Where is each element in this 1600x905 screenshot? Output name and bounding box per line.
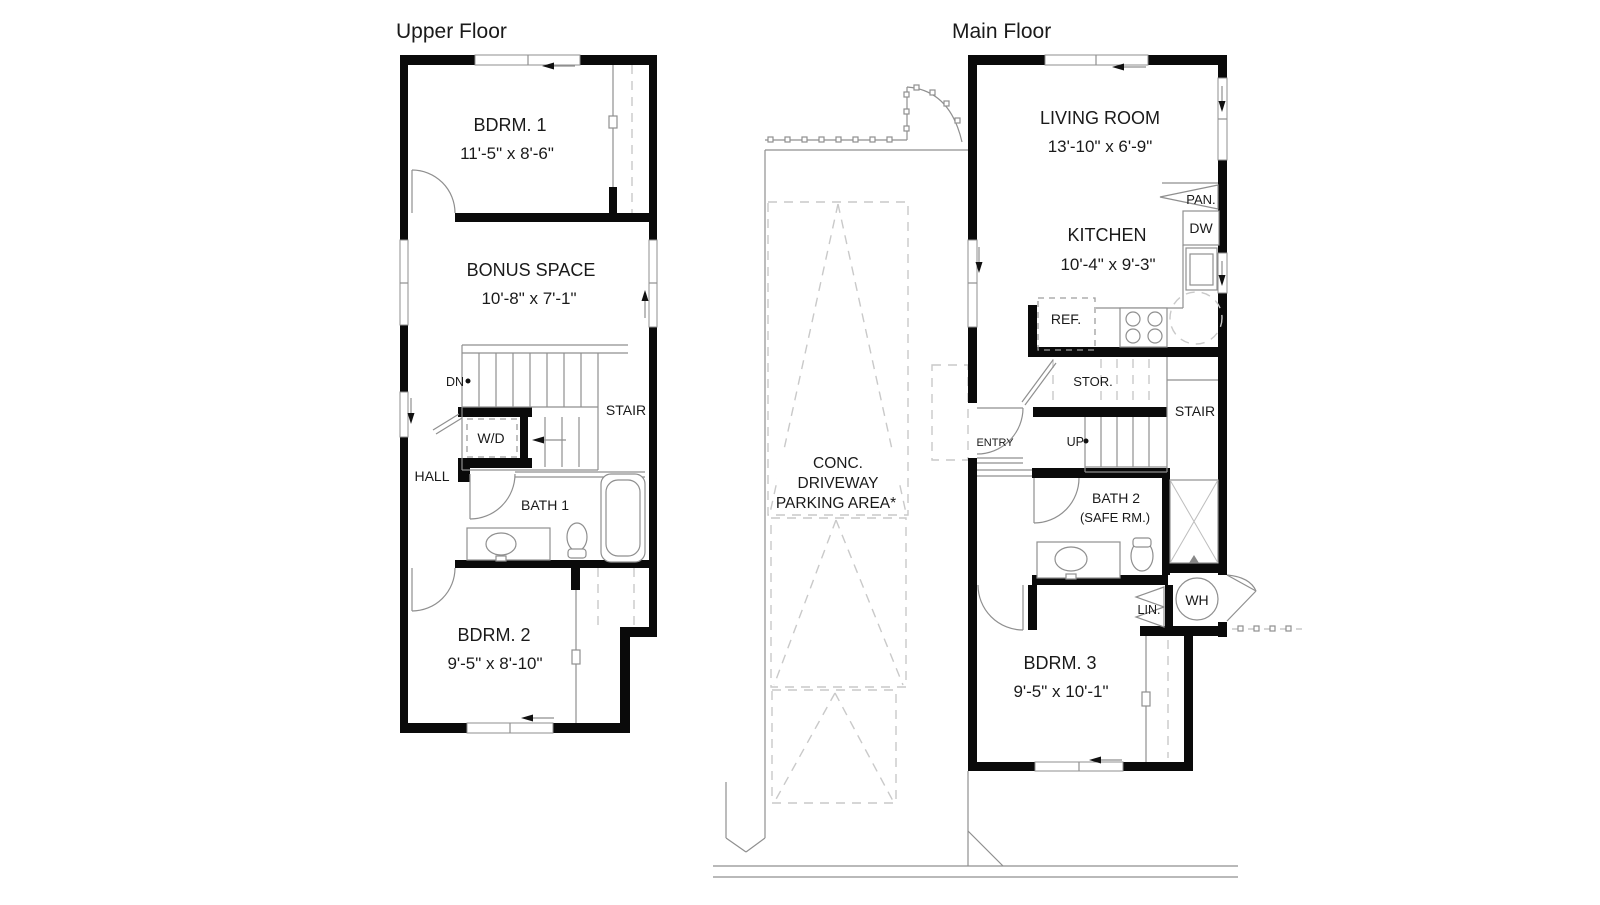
bathtub-inner bbox=[606, 480, 640, 556]
sink-symbol-bath1 bbox=[486, 533, 516, 555]
room-dims-bonus-space: 10'-8" x 7'-1" bbox=[481, 289, 576, 308]
closet-door-stub-bdrm1 bbox=[609, 116, 617, 128]
label-stair-main: STAIR bbox=[1175, 403, 1215, 419]
label-bath2: BATH 2 bbox=[1092, 490, 1140, 506]
label-water-heater: WH bbox=[1185, 592, 1208, 608]
room-dims-kitchen: 10'-4" x 9'-3" bbox=[1060, 255, 1155, 274]
room-label-bdrm3: BDRM. 3 bbox=[1023, 653, 1096, 673]
upper-floor-title: Upper Floor bbox=[396, 20, 507, 43]
label-refrigerator: REF. bbox=[1051, 311, 1081, 327]
room-label-bonus-space: BONUS SPACE bbox=[467, 260, 596, 280]
room-dims-bdrm1: 11'-5" x 8'-6" bbox=[460, 144, 554, 163]
closet-door-stub-bdrm3 bbox=[1142, 692, 1150, 706]
bdrm3-door bbox=[978, 585, 1023, 630]
room-dims-living-room: 13'-10" x 6'-9" bbox=[1048, 137, 1153, 156]
faucet-symbol-bath2 bbox=[1066, 574, 1076, 579]
burner-icon bbox=[1148, 312, 1162, 326]
toilet-base-bath1 bbox=[568, 549, 586, 558]
washer-dryer-door bbox=[433, 414, 462, 434]
label-washer-dryer: W/D bbox=[477, 430, 504, 446]
kitchen-corner-dashed-circle bbox=[1170, 292, 1222, 344]
label-entry: ENTRY bbox=[976, 437, 1014, 449]
label-linen: LIN. bbox=[1138, 603, 1161, 617]
storage-door bbox=[1022, 360, 1056, 405]
upper-floor-plan: Upper Floor bbox=[396, 20, 657, 733]
stairs-upper bbox=[462, 345, 628, 470]
bdrm2-door bbox=[412, 568, 455, 611]
room-label-bdrm1: BDRM. 1 bbox=[473, 115, 546, 135]
faucet-symbol-bath1 bbox=[496, 556, 506, 561]
bdrm3-interior-lines bbox=[1142, 636, 1168, 762]
room-label-bdrm2: BDRM. 2 bbox=[457, 625, 530, 645]
bdrm1-door bbox=[412, 170, 455, 213]
label-bath1: BATH 1 bbox=[521, 497, 569, 513]
label-dishwasher: DW bbox=[1189, 220, 1213, 236]
upper-interior-lines bbox=[515, 65, 645, 723]
bath1-fixtures bbox=[467, 474, 645, 562]
label-dn: DN bbox=[446, 375, 464, 389]
driveway-label-line2: DRIVEWAY bbox=[798, 475, 879, 492]
label-up: UP bbox=[1067, 435, 1084, 449]
label-safe-room: (SAFE RM.) bbox=[1080, 510, 1150, 525]
floorplan-svg: CONC. DRIVEWAY PARKING AREA* Upper Floor bbox=[0, 0, 1600, 905]
bath1-door bbox=[470, 474, 515, 519]
label-hall: HALL bbox=[414, 468, 449, 484]
burner-icon bbox=[1126, 312, 1140, 326]
driveway-label-line1: CONC. bbox=[813, 455, 863, 472]
sink-symbol-bath2 bbox=[1055, 547, 1087, 571]
entry-porch-outline bbox=[932, 365, 968, 460]
main-floor-plan: Main Floor bbox=[952, 20, 1302, 771]
kitchen-sink-inner bbox=[1190, 254, 1213, 285]
toilet-base-bath2 bbox=[1133, 538, 1151, 547]
entry-door bbox=[977, 408, 1023, 463]
room-label-kitchen: KITCHEN bbox=[1067, 225, 1146, 245]
room-label-living-room: LIVING ROOM bbox=[1040, 108, 1160, 128]
driveway-label-line3: PARKING AREA* bbox=[776, 495, 896, 512]
label-storage: STOR. bbox=[1073, 374, 1113, 389]
label-stair-upper: STAIR bbox=[606, 402, 646, 418]
toilet-symbol-bath1 bbox=[567, 523, 587, 551]
stair-direction-arrow-upper bbox=[532, 437, 566, 444]
stair-newel-dot-main bbox=[1084, 439, 1089, 444]
burner-icon bbox=[1148, 329, 1162, 343]
burner-icon bbox=[1126, 329, 1140, 343]
closet-door-stub-bdrm2 bbox=[572, 650, 580, 664]
room-dims-bdrm3: 9'-5" x 10'-1" bbox=[1013, 682, 1108, 701]
stair-newel-dot-upper bbox=[466, 379, 471, 384]
floorplan-drawing: CONC. DRIVEWAY PARKING AREA* Upper Floor bbox=[0, 0, 1600, 905]
water-heater-closet-doors bbox=[1227, 575, 1256, 621]
street-lines bbox=[713, 866, 1238, 877]
label-pantry: PAN. bbox=[1186, 192, 1215, 207]
side-fence-dashes bbox=[1232, 626, 1302, 631]
main-floor-title: Main Floor bbox=[952, 20, 1051, 43]
room-dims-bdrm2: 9'-5" x 8'-10" bbox=[447, 654, 542, 673]
fence-post-markers bbox=[768, 85, 960, 142]
